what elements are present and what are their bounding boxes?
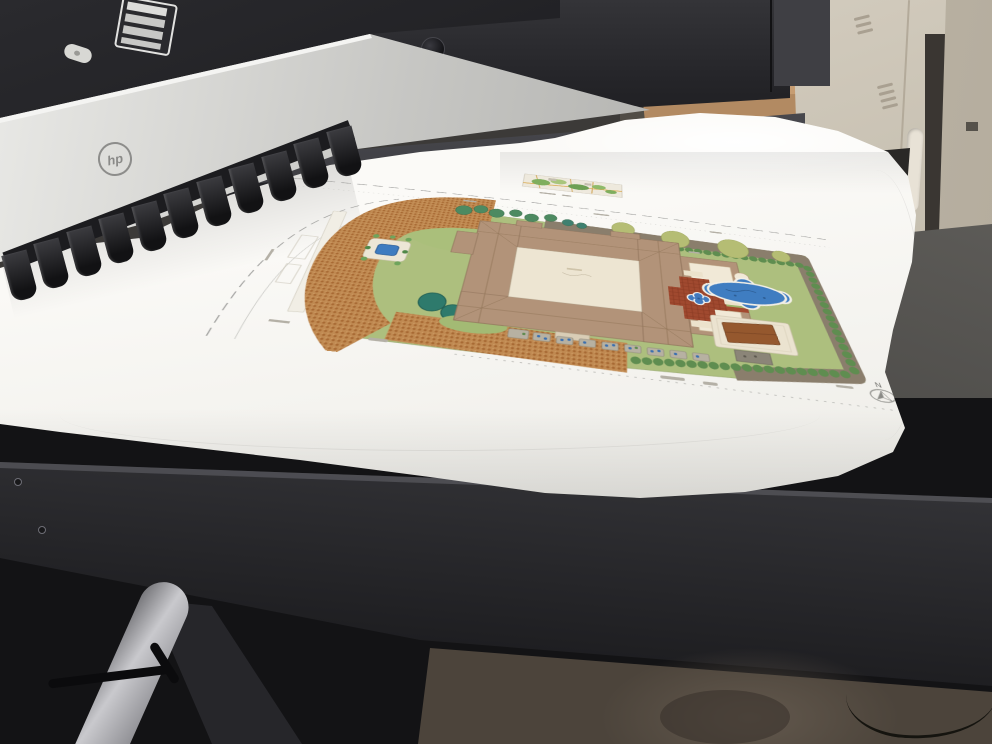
vent-slot bbox=[879, 89, 895, 96]
vent-slot bbox=[880, 96, 896, 103]
photo-scene: N hp bbox=[0, 0, 992, 744]
vent-slot bbox=[882, 103, 898, 110]
rear-body-right-panel bbox=[774, 0, 830, 86]
beam-screw bbox=[14, 478, 22, 486]
printer-diagram-sticker bbox=[114, 0, 178, 56]
title-annotation-marks bbox=[539, 192, 571, 197]
vent-slot bbox=[857, 28, 873, 35]
floor-stain bbox=[660, 690, 790, 744]
north-label: N bbox=[874, 382, 884, 390]
hp-logo-text: hp bbox=[106, 150, 125, 168]
vent-slot bbox=[855, 21, 871, 28]
button-dot bbox=[73, 50, 80, 57]
rear-body-seam bbox=[770, 0, 772, 92]
beam-screw bbox=[38, 526, 46, 534]
machine-button bbox=[966, 122, 978, 131]
